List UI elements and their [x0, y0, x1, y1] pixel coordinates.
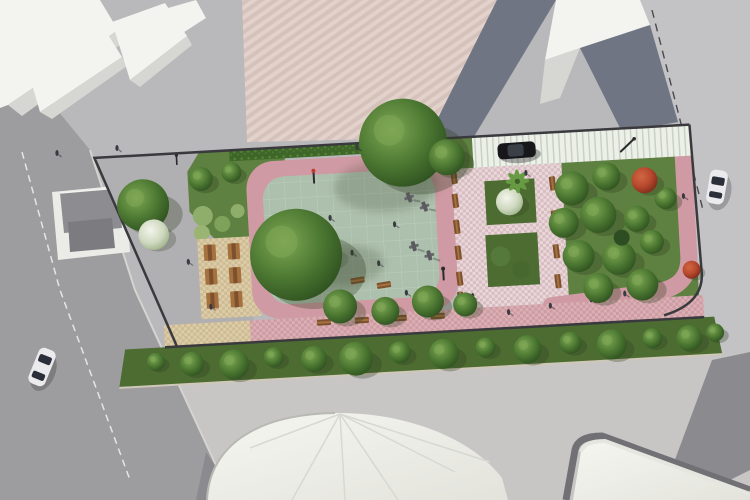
picnic-table [227, 243, 240, 260]
promenade-bench [317, 319, 331, 326]
aerial-park-render [0, 0, 750, 500]
picnic-table [229, 267, 242, 284]
render-canvas [0, 0, 750, 500]
picnic-table [230, 291, 243, 308]
picnic-table [205, 268, 218, 285]
picnic-table [203, 244, 216, 261]
picnic-table [206, 292, 219, 309]
